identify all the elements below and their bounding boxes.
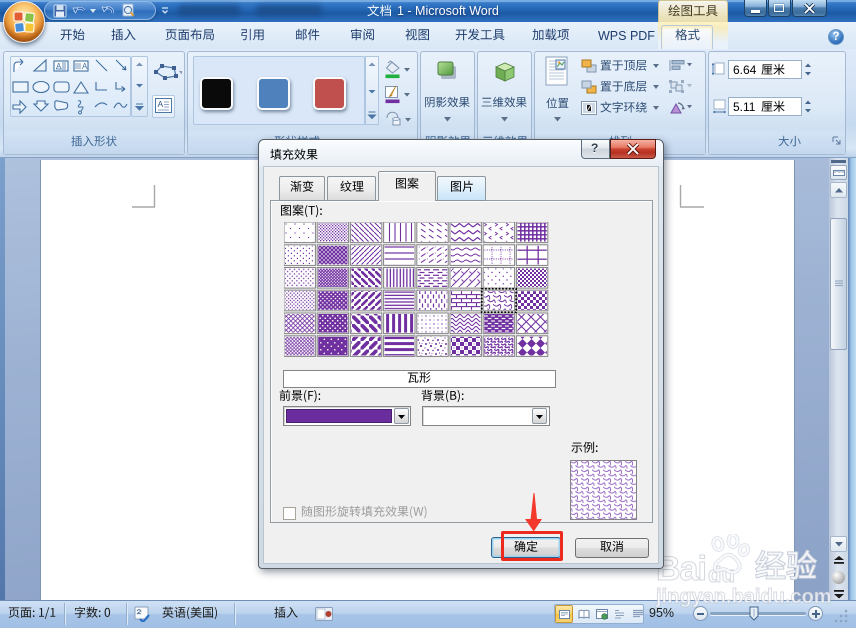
svg-text:A: A [56,62,62,71]
svg-text:A: A [82,62,88,71]
svg-text:A: A [158,99,164,109]
